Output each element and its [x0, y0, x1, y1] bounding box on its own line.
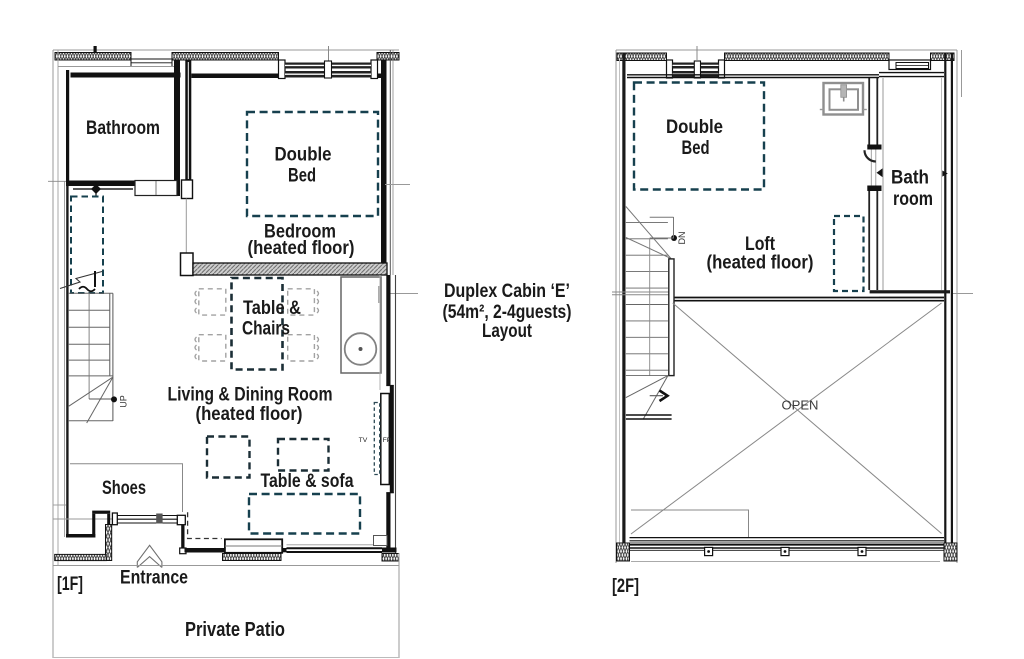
- svg-text:(54m², 2-4guests): (54m², 2-4guests): [443, 302, 572, 323]
- svg-text:Private Patio: Private Patio: [185, 619, 285, 641]
- svg-text:Table & sofa: Table & sofa: [261, 471, 354, 492]
- svg-text:Living & Dining Room: Living & Dining Room: [168, 385, 333, 406]
- svg-text:[1F]: [1F]: [57, 574, 83, 595]
- svg-text:(heated floor): (heated floor): [196, 404, 303, 425]
- svg-text:Bed: Bed: [682, 138, 710, 159]
- svg-text:Bed: Bed: [288, 166, 316, 187]
- svg-text:Entrance: Entrance: [120, 568, 188, 589]
- svg-text:Chairs: Chairs: [242, 319, 290, 340]
- svg-text:Table &: Table &: [243, 298, 301, 319]
- svg-text:OPEN: OPEN: [782, 398, 819, 413]
- svg-text:room: room: [893, 189, 933, 210]
- svg-text:(heated floor): (heated floor): [707, 253, 814, 274]
- svg-text:TV: TV: [359, 437, 368, 444]
- svg-text:Bath: Bath: [891, 168, 929, 189]
- svg-text:Double: Double: [666, 117, 723, 138]
- svg-text:DN: DN: [677, 232, 687, 245]
- svg-text:UP: UP: [119, 395, 129, 408]
- svg-text:Double: Double: [275, 145, 332, 166]
- svg-text:Layout: Layout: [482, 321, 533, 342]
- svg-text:Duplex Cabin ‘E’: Duplex Cabin ‘E’: [444, 281, 570, 302]
- svg-text:Shoes: Shoes: [102, 478, 146, 499]
- svg-text:Bathroom: Bathroom: [86, 118, 160, 139]
- svg-text:FP: FP: [383, 437, 392, 444]
- svg-text:(heated floor): (heated floor): [248, 238, 355, 259]
- svg-text:[2F]: [2F]: [612, 576, 639, 597]
